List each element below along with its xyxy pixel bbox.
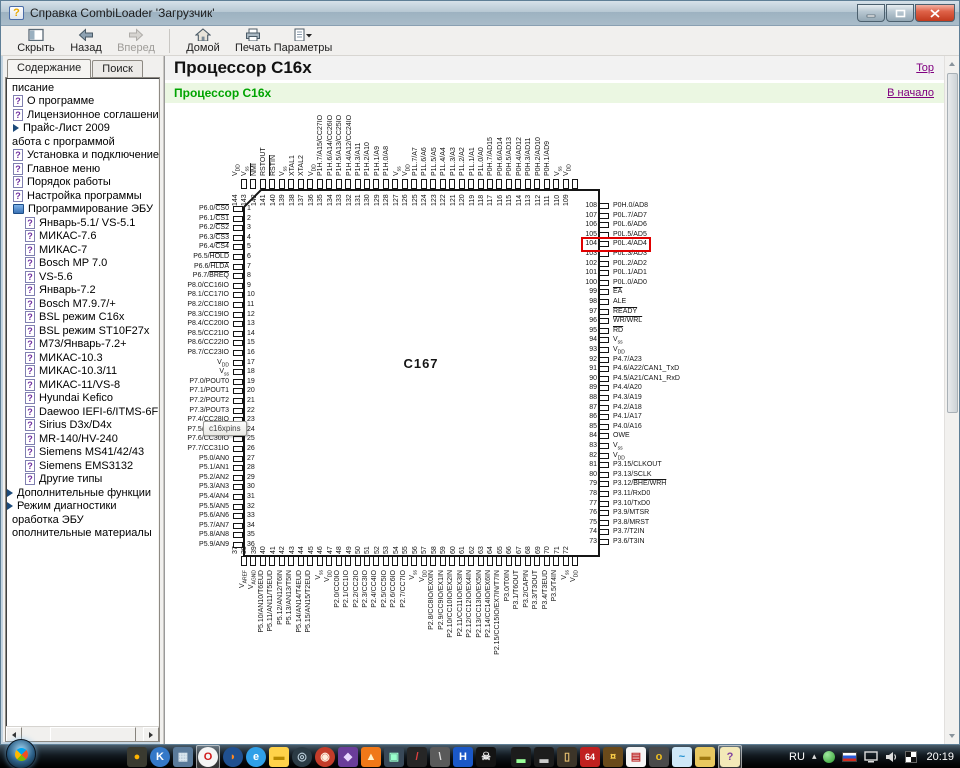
pin-label: P5.7/AN7	[164, 522, 229, 530]
pin-label: Vss	[279, 166, 287, 176]
question-page-icon: ?	[25, 352, 35, 364]
pin-number: 115	[506, 195, 514, 206]
tree-item[interactable]: ?Настройка программы	[6, 189, 159, 203]
pin-number: 122	[440, 194, 448, 206]
media-player-icon[interactable]: ◎	[292, 747, 312, 767]
kmplayer-icon[interactable]: K	[150, 747, 170, 767]
tree-item[interactable]: ополнительные материалы	[6, 527, 159, 541]
tab-contents[interactable]: Содержание	[7, 59, 91, 78]
pin-label: P1L.1/A1	[469, 147, 477, 176]
pin-number: 137	[298, 194, 306, 206]
pin-label: P1H.1/A9	[374, 146, 382, 176]
question-page-icon: ?	[25, 473, 35, 485]
tree-item-label: Bosch MP 7.0	[39, 257, 107, 269]
question-page-icon: ?	[25, 365, 35, 377]
toolbar-hide-button[interactable]: Скрыть	[11, 27, 61, 55]
pin-label: P8.0/CC16IO	[164, 282, 229, 290]
pin-square	[233, 273, 243, 279]
pin-label: P3.1/T6OUT	[513, 570, 521, 609]
sidebar: Содержание Поиск писание?О программе?Лиц…	[1, 56, 160, 744]
pin-label: P4.2/A18	[613, 404, 642, 412]
pin-number: 87	[569, 404, 597, 412]
pin-square	[544, 179, 550, 189]
pin-label: P2.1/CC1IO	[343, 570, 351, 608]
toolbar-home-button[interactable]: Домой	[178, 27, 228, 55]
pin-number: 14	[247, 330, 255, 338]
tree-item-label: Прайс-Лист 2009	[23, 122, 110, 134]
flame-app-icon[interactable]: ▲	[361, 747, 381, 767]
pin-square	[544, 556, 550, 566]
chip-name: C167	[243, 360, 599, 368]
tree-item[interactable]: ?Hyundai Kefico	[6, 392, 159, 406]
tree-item[interactable]: Дополнительные функции	[6, 486, 159, 500]
tree-item[interactable]: ?Другие типы	[6, 473, 159, 487]
book-icon	[13, 204, 24, 214]
swoosh-app-icon[interactable]: ~	[672, 747, 692, 767]
doc-app-icon[interactable]: ▤	[626, 747, 646, 767]
tree-horizontal-scrollbar[interactable]	[6, 726, 159, 741]
tree-item[interactable]: ?Bosch MP 7.0	[6, 257, 159, 271]
toolbar-back-button[interactable]: Назад	[61, 27, 111, 55]
round-red-app-icon[interactable]: ◉	[315, 747, 335, 767]
pin-number: 76	[569, 509, 597, 517]
tree-item-label: Siemens EMS3132	[39, 460, 133, 472]
toolbar-button-label: Вперед	[117, 42, 155, 54]
pin-number: 30	[247, 483, 255, 491]
tree-item[interactable]: абота с программой	[6, 135, 159, 149]
pin-number: 37	[232, 546, 240, 554]
tree-item[interactable]: ?Январь-5.1/ VS-5.1	[6, 216, 159, 230]
pin-square	[506, 556, 512, 566]
toolbar-forward-button[interactable]: Вперед	[111, 27, 161, 55]
pin-number: 136	[308, 194, 316, 206]
pin-label: P2.2/CC2IO	[353, 570, 361, 608]
tree-item-label: Sirius D3x/D4x	[39, 419, 112, 431]
pin-square	[487, 179, 493, 189]
pin-square	[241, 179, 247, 189]
tree-item[interactable]: ?Sirius D3x/D4x	[6, 419, 159, 433]
tree-item-label: Bosch M7.9.7/+	[39, 298, 116, 310]
tree-item-label: оработка ЭБУ	[12, 514, 84, 526]
tree-item-label: МИКАС-10.3	[39, 352, 103, 364]
pin-square	[440, 556, 446, 566]
pin-square	[599, 510, 609, 516]
pin-label: P2.11/CC11IO/EX3IN	[457, 570, 465, 637]
tree-item[interactable]: ?Siemens MS41/42/43	[6, 446, 159, 460]
tree-item-label: МИКАС-7	[39, 244, 87, 256]
pin-square	[572, 179, 578, 189]
question-page-icon: ?	[25, 446, 35, 458]
pin-square	[599, 405, 609, 411]
pin-label: Vss	[393, 166, 401, 176]
pin-number: 59	[440, 546, 448, 554]
toolbar-options-button[interactable]: Параметры	[278, 27, 328, 55]
pin-label: P4.5/A21/CAN1_RxD	[613, 375, 680, 383]
pin-label: P6.7/BREQ	[164, 272, 229, 280]
pin-label: P0H.6/AD14	[497, 137, 505, 176]
toolbar-print-button[interactable]: Печать	[228, 27, 278, 55]
toolbar-button-label: Параметры	[274, 42, 333, 54]
tree-item[interactable]: ?МИКАС-7	[6, 243, 159, 257]
pin-square	[355, 179, 361, 189]
question-page-icon: ?	[13, 163, 23, 175]
tooltip: c16xpins	[203, 421, 247, 436]
pin-square	[599, 376, 609, 382]
tree-item[interactable]: ?МИКАС-10.3/11	[6, 365, 159, 379]
pin-label: P6.5/HOLD	[164, 253, 229, 261]
opera-icon[interactable]: O	[198, 747, 218, 767]
pin-label: P7.1/POUT1	[164, 387, 229, 395]
pin-number: 94	[569, 336, 597, 344]
scroll-track[interactable]	[22, 727, 143, 741]
pin-number: 119	[469, 195, 477, 206]
pin-number: 98	[569, 298, 597, 306]
pin-label: P5.14/AN14/T4EUD	[296, 570, 304, 633]
pin-number: 113	[525, 195, 533, 206]
pin-label: P2.10/CC10IO/EX2IN	[447, 570, 455, 638]
pin-label: P5.3/AN3	[164, 483, 229, 491]
pin-number: 107	[569, 212, 597, 220]
pin-number: 142	[251, 194, 259, 206]
pin-label: P8.6/CC22IO	[164, 339, 229, 347]
firefox-icon[interactable]: ◗	[223, 747, 243, 767]
tree-item[interactable]: ?Siemens EMS3132	[6, 459, 159, 473]
pin-number: 17	[247, 359, 255, 367]
pin-label: P3.12/BHE/WRH	[613, 480, 666, 488]
pin-square	[233, 484, 243, 490]
pin-number: 11	[247, 301, 254, 309]
tree-item[interactable]: ?Январь-7.2	[6, 284, 159, 298]
desktop: ? Справка CombiLoader 'Загрузчик' Скрыть…	[0, 0, 960, 768]
taskbar: ●K▦O◗e▬◎◉◆▲▣/\H☠▂▂▯64¤▤o~▬? RU ▴ 20:19	[0, 745, 960, 768]
pin-square	[563, 556, 569, 566]
badge-app-icon[interactable]: ¤	[603, 747, 623, 767]
tree-item[interactable]: Программирование ЭБУ	[6, 203, 159, 217]
pin-square	[233, 494, 243, 500]
pin-number: 62	[469, 546, 477, 554]
pin-label: P6.3/CS3	[164, 234, 229, 242]
pin-number: 2	[247, 215, 251, 223]
question-page-icon: ?	[25, 284, 35, 296]
pin-number: 31	[247, 493, 255, 501]
key-app-icon[interactable]: o	[649, 747, 669, 767]
pin-number: 20	[247, 387, 255, 395]
toolbar-button-label: Скрыть	[17, 42, 55, 54]
pin-number: 109	[563, 194, 571, 206]
tree-item[interactable]: ?Главное меню	[6, 162, 159, 176]
pin-number: 53	[383, 546, 391, 554]
tree-item-label: МИКАС-10.3/11	[39, 365, 117, 377]
pin-label: P1H.7/A15/CC27IO	[317, 115, 325, 176]
pin-number: 3	[247, 224, 251, 232]
scroll-down-arrow-icon[interactable]	[945, 728, 959, 744]
pin-label: P3.0/T0IN	[504, 570, 512, 602]
pin-label: P1L.4/A4	[440, 147, 448, 176]
pin-number: 134	[327, 194, 335, 206]
scroll-up-arrow-icon[interactable]	[945, 56, 959, 72]
question-page-icon: ?	[13, 149, 23, 161]
pin-label: P5.15/AN15/T2EUD	[305, 570, 313, 633]
tree-item[interactable]: ?МИКАС-11/VS-8	[6, 378, 159, 392]
console-icon[interactable]: ▂	[511, 747, 531, 767]
tree-item[interactable]: ?BSL режим C16x	[6, 311, 159, 325]
pin-label: Vss	[554, 166, 562, 176]
tree-item[interactable]: ?BSL режим ST10F27x	[6, 324, 159, 338]
pin-square	[599, 472, 609, 478]
pin-square	[411, 556, 417, 566]
pin-label: P0H.0/AD8	[613, 202, 648, 210]
pin-square	[233, 331, 243, 337]
tree-item[interactable]: ?МИКАС-7.6	[6, 230, 159, 244]
pin-number: 77	[569, 500, 597, 508]
tree-item[interactable]: ?МИКАС-10.3	[6, 351, 159, 365]
tab-search[interactable]: Поиск	[92, 60, 142, 78]
minimize-button[interactable]	[857, 4, 885, 22]
pin-number: 67	[516, 546, 524, 554]
pin-label: P0L.0/AD0	[613, 279, 647, 287]
pin-number: 83	[569, 442, 597, 450]
pin-square	[496, 556, 502, 566]
pin-label: P2.12/CC12IO/EX4IN	[466, 570, 474, 638]
pin-square	[440, 179, 446, 189]
tree-item[interactable]: ?Лицензионное соглашение	[6, 108, 159, 122]
scroll-thumb[interactable]	[50, 727, 136, 742]
pin-square	[599, 213, 609, 219]
pin-square	[599, 443, 609, 449]
pin-label: P1H.6/A14/CC26IO	[327, 115, 335, 176]
ru-flag-icon[interactable]	[842, 752, 857, 762]
titlebar[interactable]: ? Справка CombiLoader 'Загрузчик'	[1, 1, 959, 26]
pin-square	[553, 179, 559, 189]
sidebar-tabs: Содержание Поиск	[5, 58, 160, 78]
pin-label: P5.0/AN0	[164, 455, 229, 463]
tree-item[interactable]: Прайс-Лист 2009	[6, 122, 159, 136]
question-page-icon: ?	[25, 244, 35, 256]
pin-square	[449, 179, 455, 189]
pin-number: 58	[431, 546, 439, 554]
tree-item-label: О программе	[27, 95, 94, 107]
pin-label: ALE	[613, 298, 626, 306]
help-viewer-icon-active-slot[interactable]: ?	[718, 745, 742, 768]
pin-square	[317, 179, 323, 189]
scroll-right-arrow-icon[interactable]	[143, 727, 159, 742]
pin-square	[233, 350, 243, 356]
pin-label: OWE	[613, 432, 630, 440]
pin-label: P5.8/AN8	[164, 531, 229, 539]
pin-square	[599, 309, 609, 315]
pin-number: 21	[247, 397, 255, 405]
pin-number: 126	[402, 194, 410, 206]
folder-2-icon[interactable]: ▬	[695, 747, 715, 767]
tree-item-label: Другие типы	[39, 473, 102, 485]
pin-number: 99	[569, 288, 597, 296]
h-app-icon[interactable]: H	[453, 747, 473, 767]
internet-explorer-icon[interactable]: e	[246, 747, 266, 767]
volume-icon[interactable]	[885, 751, 898, 763]
pin-number: 102	[569, 260, 597, 268]
tree-item[interactable]: ?VS-5.6	[6, 270, 159, 284]
pin-number: 138	[289, 194, 297, 206]
pin-number: 32	[247, 503, 255, 511]
pin-number: 51	[364, 546, 372, 554]
pin-square	[288, 556, 294, 566]
pin-number: 60	[450, 546, 458, 554]
pin-number: 97	[569, 308, 597, 316]
pin-square	[599, 385, 609, 391]
stylus-app-icon[interactable]: \	[430, 747, 450, 767]
pin-square	[468, 179, 474, 189]
pin-label: P3.15/CLKOUT	[613, 461, 662, 469]
pin-label: P5.5/AN5	[164, 503, 229, 511]
tree-item[interactable]: ?Установка и подключение	[6, 149, 159, 163]
start-button[interactable]	[6, 739, 36, 768]
question-page-icon: ?	[25, 217, 35, 229]
pin-number: 63	[478, 546, 486, 554]
pin-number: 78	[569, 490, 597, 498]
photo-viewer-icon[interactable]: ▦	[173, 747, 193, 767]
antivirus-icon[interactable]	[823, 751, 835, 763]
pin-square	[599, 481, 609, 487]
pin-square	[364, 556, 370, 566]
pin-square	[373, 179, 379, 189]
pin-label: P0H.7/AD15	[487, 137, 495, 176]
pin-label: P0H.3/AD11	[525, 138, 533, 176]
pin-number: 96	[569, 317, 597, 325]
pin-square	[430, 556, 436, 566]
help-viewer-icon[interactable]: ?	[720, 747, 740, 767]
toolbar-separator	[169, 29, 170, 53]
pin-number: 55	[402, 546, 410, 554]
pen-app-icon[interactable]: /	[407, 747, 427, 767]
pin-label: P1H.3/A11	[355, 143, 363, 176]
pin-label: P5.2/AN2	[164, 474, 229, 482]
hidden-icons-arrow[interactable]: ▴	[812, 751, 817, 762]
tree-item-label: Режим диагностики	[17, 500, 117, 512]
console-icon-2[interactable]: ▂	[534, 747, 554, 767]
language-indicator[interactable]: RU	[789, 751, 805, 763]
doorway-app-icon[interactable]: ▯	[557, 747, 577, 767]
pin-label: RD	[613, 327, 623, 335]
tree-item[interactable]: Режим диагностики	[6, 500, 159, 514]
pin-number: 91	[569, 365, 597, 373]
tree-item-label: ополнительные материалы	[12, 527, 152, 539]
pin-square	[599, 318, 609, 324]
display-icon[interactable]	[864, 751, 878, 763]
amber-dot-app-icon[interactable]: ●	[127, 747, 147, 767]
pin-square	[233, 388, 243, 394]
app-64-icon[interactable]: 64	[580, 747, 600, 767]
pin-number: 45	[308, 546, 316, 554]
pin-square	[307, 179, 313, 189]
tree-item[interactable]: оработка ЭБУ	[6, 513, 159, 527]
pin-square	[402, 556, 408, 566]
pin-number: 110	[554, 195, 562, 206]
pin-label: P7.6/CC30IO	[164, 435, 229, 443]
checkered-icon[interactable]	[905, 751, 917, 763]
pin-label: VDD	[308, 164, 316, 176]
question-page-icon: ?	[25, 325, 35, 337]
pin-label: P8.1/CC17IO	[164, 291, 229, 299]
tree-item[interactable]: ?Bosch M7.9.7/+	[6, 297, 159, 311]
pin-number: 68	[525, 546, 533, 554]
pin-square	[233, 360, 243, 366]
pin-label: P3.13/SCLK	[613, 471, 652, 479]
content-vertical-scrollbar[interactable]	[944, 56, 959, 744]
close-button[interactable]	[915, 4, 955, 22]
pin-label: P7.2/POUT2	[164, 397, 229, 405]
question-page-icon: ?	[25, 338, 35, 350]
pin-label: P3.6/T3IN	[613, 538, 645, 546]
tree-item[interactable]: ?О программе	[6, 95, 159, 109]
question-page-icon: ?	[25, 311, 35, 323]
top-link[interactable]: Top	[916, 62, 934, 74]
tree-item-label: Настройка программы	[27, 190, 142, 202]
opera-icon-active-slot[interactable]: O	[196, 745, 220, 768]
pin-label: P1L.3/A3	[450, 147, 458, 176]
pin-number: 114	[516, 195, 524, 206]
pin-square	[233, 398, 243, 404]
pin-number: 66	[506, 546, 514, 554]
pin-square	[599, 357, 609, 363]
pin-number: 125	[412, 194, 420, 206]
skull-app-icon[interactable]: ☠	[476, 747, 496, 767]
pin-label: P3.11/RxD0	[613, 490, 650, 498]
folder-icon[interactable]: ▬	[269, 747, 289, 767]
pin-square	[260, 179, 266, 189]
pin-label: P5.9/AN9	[164, 541, 229, 549]
question-page-icon: ?	[13, 109, 23, 121]
tree-item[interactable]: ?Daewoo IEFI-6/ITMS-6F	[6, 405, 159, 419]
pin-label: P0H.4/AD12	[516, 137, 524, 176]
pin-number: 40	[260, 546, 268, 554]
pin-number: 71	[554, 546, 562, 554]
purple-app-icon[interactable]: ◆	[338, 747, 358, 767]
pin-label: P3.3/T3OUT	[532, 570, 540, 609]
pin-square	[260, 556, 266, 566]
pin-square	[233, 216, 243, 222]
question-page-icon: ?	[25, 230, 35, 242]
pin-label: XTAL2	[298, 155, 306, 176]
pin-label: P3.8/MRST	[613, 519, 649, 527]
pin-square	[233, 408, 243, 414]
tree-item-label: МИКАС-11/VS-8	[39, 379, 120, 391]
pin-square	[525, 179, 531, 189]
pin-square	[599, 453, 609, 459]
video-app-icon[interactable]: ▣	[384, 747, 404, 767]
tree-item-label: писание	[12, 82, 54, 94]
tree-item[interactable]: ?MR-140/HV-240	[6, 432, 159, 446]
pin-square	[599, 222, 609, 228]
scroll-thumb[interactable]	[947, 73, 958, 413]
pin-number: 64	[487, 546, 495, 554]
pin-label: P0L.2/AD2	[613, 260, 647, 268]
pin-square	[233, 254, 243, 260]
pin-number: 75	[569, 519, 597, 527]
pin-number: 22	[247, 407, 255, 415]
question-page-icon: ?	[25, 298, 35, 310]
pin-number: 121	[450, 194, 458, 206]
back-to-start-link[interactable]: В начало	[887, 87, 934, 99]
pin-square	[233, 340, 243, 346]
pin-number: 13	[247, 320, 255, 328]
pin-label: P1L.6/A6	[421, 147, 429, 176]
tree-item[interactable]: ?Порядок работы	[6, 176, 159, 190]
tree-item[interactable]: писание	[6, 81, 159, 95]
maximize-button[interactable]	[886, 4, 914, 22]
tree-item[interactable]: ?М73/Январь-7.2+	[6, 338, 159, 352]
pin-label: P6.6/HLDA	[164, 263, 229, 271]
pin-label: P1H.0/A8	[383, 146, 391, 176]
